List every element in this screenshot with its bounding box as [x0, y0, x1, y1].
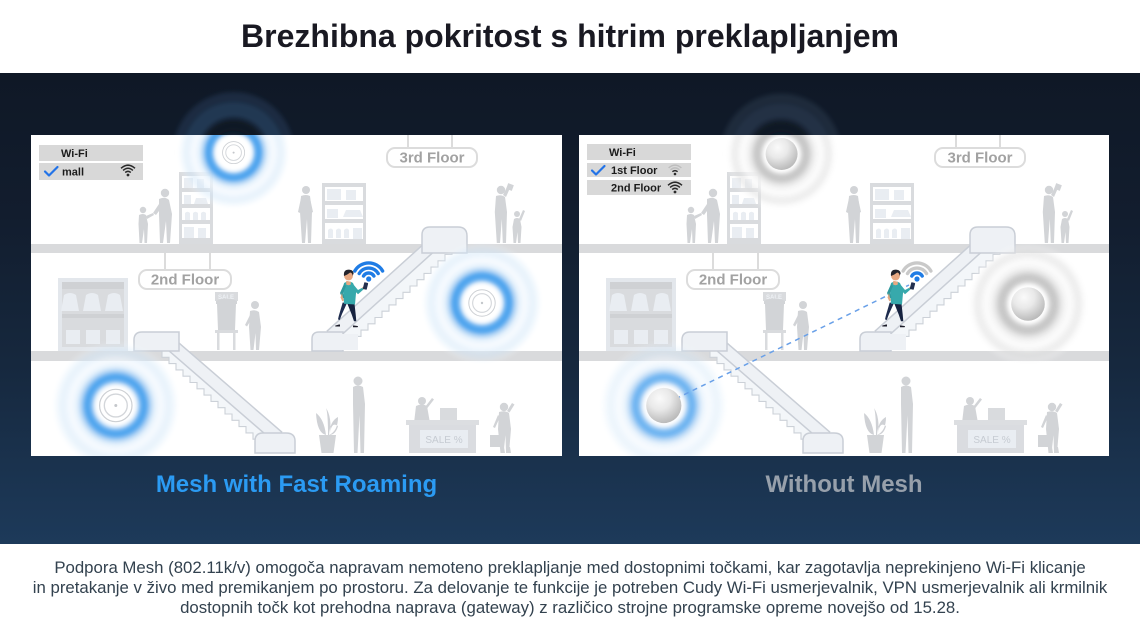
svg-text:1st Floor: 1st Floor — [611, 165, 658, 177]
svg-text:mall: mall — [62, 167, 84, 179]
svg-text:Wi-Fi: Wi-Fi — [609, 147, 636, 159]
svg-text:Wi-Fi: Wi-Fi — [61, 148, 88, 160]
svg-text:2nd Floor: 2nd Floor — [611, 183, 662, 195]
